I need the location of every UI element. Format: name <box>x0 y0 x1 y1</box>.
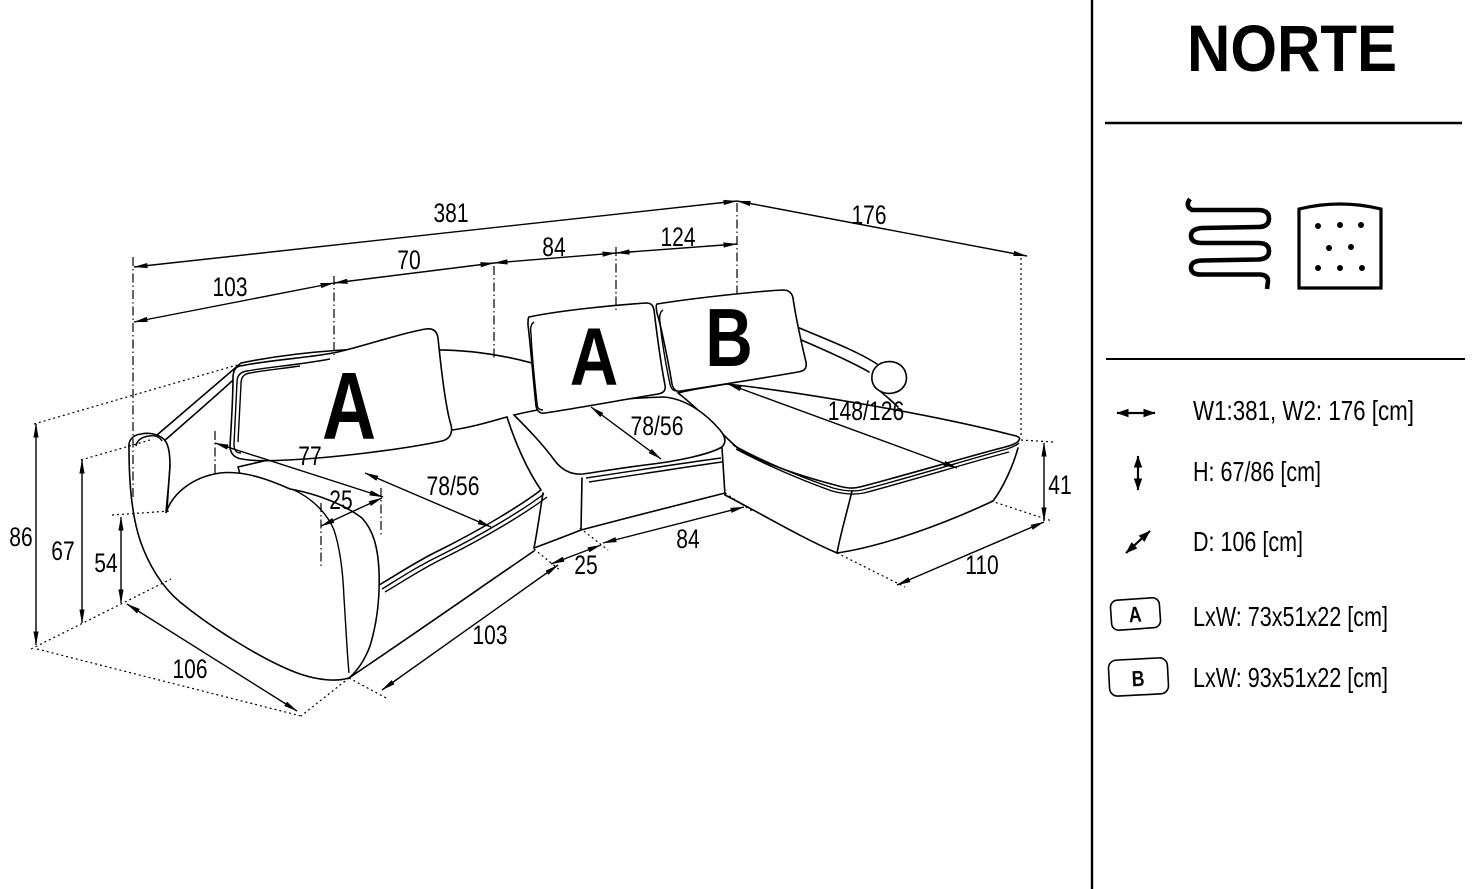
svg-text:H: 67/86 [cm]: H: 67/86 [cm] <box>1193 456 1321 487</box>
svg-text:25: 25 <box>574 550 597 580</box>
svg-text:25: 25 <box>329 485 352 515</box>
svg-text:103: 103 <box>473 620 508 650</box>
svg-text:176: 176 <box>852 200 887 230</box>
svg-text:67: 67 <box>51 536 74 566</box>
svg-text:A: A <box>1128 603 1142 628</box>
svg-text:381: 381 <box>434 198 469 228</box>
svg-text:B: B <box>1131 667 1145 692</box>
svg-text:86: 86 <box>9 522 32 552</box>
svg-text:124: 124 <box>661 222 696 252</box>
svg-text:41: 41 <box>1048 470 1071 500</box>
svg-text:70: 70 <box>397 245 420 275</box>
svg-text:77: 77 <box>298 441 321 471</box>
svg-text:106: 106 <box>173 654 208 684</box>
svg-text:LxW: 93x51x22 [cm]: LxW: 93x51x22 [cm] <box>1193 662 1388 693</box>
svg-text:D: 106 [cm]: D: 106 [cm] <box>1193 526 1303 557</box>
svg-text:103: 103 <box>213 272 248 302</box>
svg-text:A: A <box>322 353 376 460</box>
svg-text:84: 84 <box>542 232 565 262</box>
svg-text:NORTE: NORTE <box>1187 11 1397 85</box>
svg-text:110: 110 <box>965 550 999 580</box>
svg-text:148/126: 148/126 <box>828 396 905 426</box>
svg-text:LxW: 73x51x22 [cm]: LxW: 73x51x22 [cm] <box>1193 601 1388 632</box>
svg-text:B: B <box>705 291 752 384</box>
svg-text:54: 54 <box>94 548 117 578</box>
svg-text:A: A <box>570 311 619 403</box>
svg-text:W1:381, W2: 176 [cm]: W1:381, W2: 176 [cm] <box>1193 395 1414 426</box>
svg-text:78/56: 78/56 <box>427 471 480 501</box>
svg-text:84: 84 <box>676 524 699 554</box>
svg-text:78/56: 78/56 <box>631 411 684 441</box>
